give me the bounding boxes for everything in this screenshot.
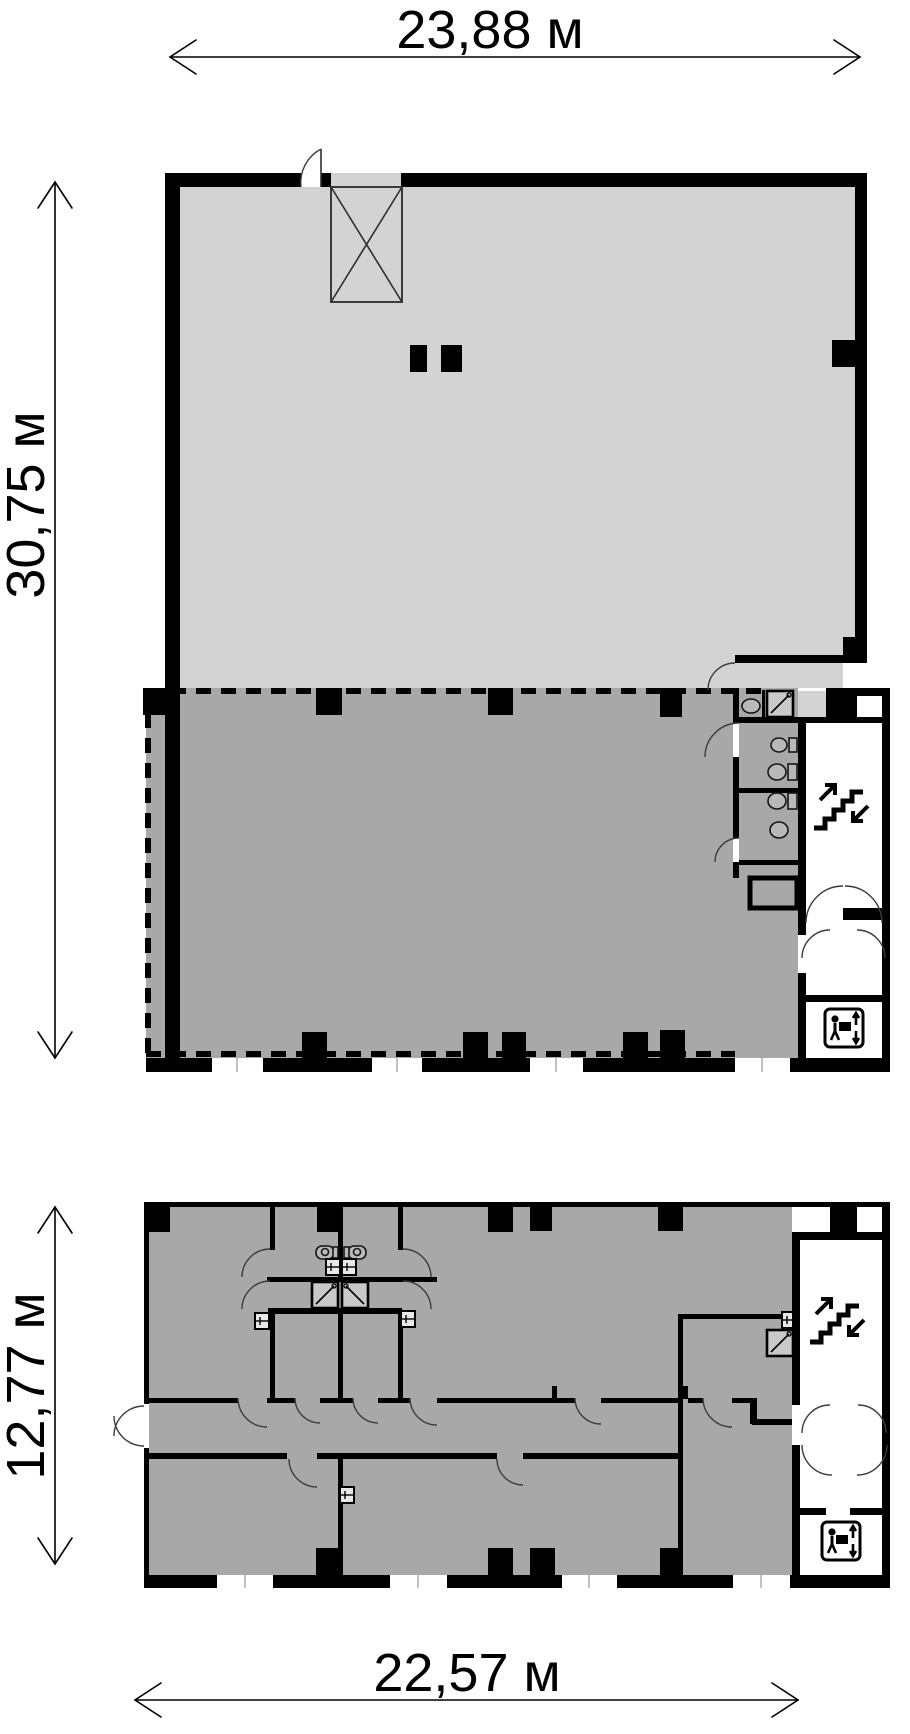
toilet-icon (771, 738, 797, 752)
toilet-icon (344, 1246, 366, 1259)
toilet-icon (768, 793, 797, 809)
freight-elevator-icon (822, 1522, 860, 1560)
dimension-lower-width: 22,57 м (135, 1643, 798, 1717)
freight-elevator-icon (825, 1009, 863, 1047)
sink-box-icon (326, 1259, 340, 1275)
lower-height-label: 12,77 м (0, 1292, 56, 1479)
duct-room (750, 878, 797, 908)
lower-selected-zone[interactable] (149, 1206, 792, 1575)
toilet-icon (316, 1246, 338, 1259)
outside-notch (843, 663, 867, 688)
elevator-icon (312, 1282, 338, 1308)
radiator-icon (401, 1311, 415, 1327)
upper-width-label: 23,88 м (396, 0, 583, 60)
upper-selected-zone[interactable] (146, 688, 798, 1058)
upper-floor-plan (143, 149, 890, 1072)
sink-box-icon (342, 1259, 356, 1275)
floor-plan-drawing: 23,88 м 30,75 м 12,77 м 22,57 м (0, 0, 910, 1734)
lower-stair-block (792, 1202, 890, 1575)
upper-height-label: 30,75 м (0, 411, 56, 598)
lower-floor-plan (114, 1202, 890, 1588)
floor-plan-page: 23,88 м 30,75 м 12,77 м 22,57 м (0, 0, 910, 1734)
radiator-icon (340, 1487, 354, 1503)
toilet-icon (768, 764, 797, 780)
sink-icon (770, 822, 788, 838)
sink-icon (742, 699, 760, 713)
dimension-upper-height: 30,75 м (0, 182, 72, 1058)
upper-open-zone (180, 187, 855, 688)
radiator-icon (255, 1313, 269, 1329)
shaft-x-icon (331, 187, 402, 302)
elevator-icon (342, 1282, 368, 1308)
dimension-upper-width: 23,88 м (170, 0, 860, 74)
elevator-icon (767, 691, 793, 717)
lower-width-label: 22,57 м (373, 1643, 560, 1703)
elevator-icon (767, 1330, 793, 1356)
lobby (806, 886, 882, 995)
dimension-lower-height: 12,77 м (0, 1207, 72, 1564)
